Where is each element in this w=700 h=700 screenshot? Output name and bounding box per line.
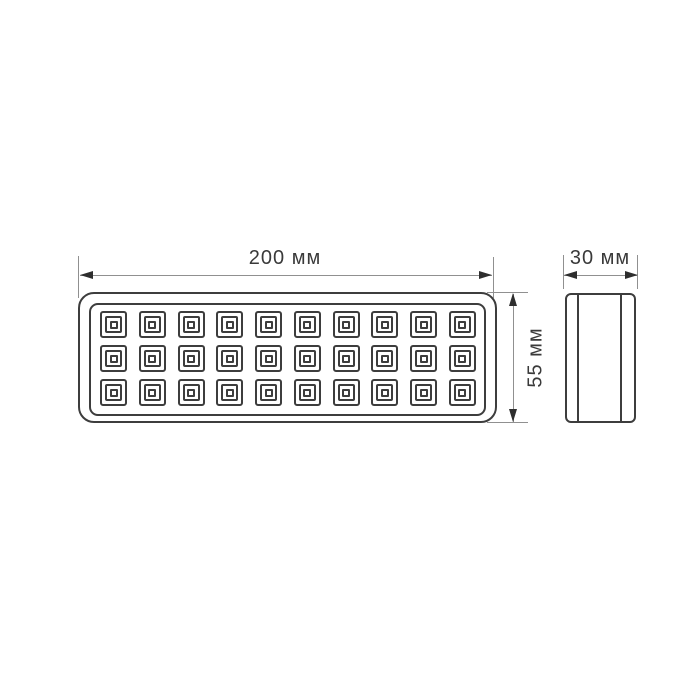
side-body-edge-line-right xyxy=(620,295,622,421)
led-cell-inner-frame xyxy=(183,384,200,401)
led-cell xyxy=(449,311,476,338)
led-chip-icon xyxy=(420,321,428,329)
led-chip-icon xyxy=(226,355,234,363)
led-chip-icon xyxy=(342,389,350,397)
led-cell-inner-frame xyxy=(260,316,277,333)
led-cell xyxy=(178,345,205,372)
led-chip-icon xyxy=(420,355,428,363)
led-cell-inner-frame xyxy=(221,316,238,333)
led-chip-icon xyxy=(381,389,389,397)
height-dimension-line xyxy=(513,294,514,422)
led-cell xyxy=(410,311,437,338)
led-cell-inner-frame xyxy=(376,316,393,333)
led-cell-inner-frame xyxy=(415,316,432,333)
side-body-edge-line-left xyxy=(577,295,579,421)
led-cell-inner-frame xyxy=(338,384,355,401)
led-cell-inner-frame xyxy=(415,350,432,367)
led-cell-inner-frame xyxy=(454,350,471,367)
led-cell-inner-frame xyxy=(144,384,161,401)
led-cell-inner-frame xyxy=(338,316,355,333)
led-chip-icon xyxy=(110,321,118,329)
led-chip-icon xyxy=(110,355,118,363)
arrowhead-left-icon xyxy=(564,271,577,279)
led-chip-icon xyxy=(265,355,273,363)
led-chip-icon xyxy=(458,321,466,329)
led-cell-inner-frame xyxy=(454,384,471,401)
led-chip-icon xyxy=(303,321,311,329)
led-cell xyxy=(255,379,282,406)
led-chip-icon xyxy=(458,355,466,363)
led-cell xyxy=(139,345,166,372)
led-chip-icon xyxy=(187,389,195,397)
led-cell-inner-frame xyxy=(260,350,277,367)
height-dimension-label: 55 мм xyxy=(521,292,551,422)
led-cell xyxy=(294,345,321,372)
led-cell xyxy=(371,345,398,372)
led-cell xyxy=(216,379,243,406)
led-grid xyxy=(100,311,476,406)
led-cell xyxy=(255,311,282,338)
arrowhead-down-icon xyxy=(509,409,517,422)
led-cell-inner-frame xyxy=(299,384,316,401)
led-cell xyxy=(449,379,476,406)
led-cell-inner-frame xyxy=(105,350,122,367)
led-cell-inner-frame xyxy=(299,316,316,333)
led-cell-inner-frame xyxy=(221,350,238,367)
led-chip-icon xyxy=(148,355,156,363)
led-cell-inner-frame xyxy=(376,384,393,401)
led-chip-icon xyxy=(226,389,234,397)
led-cell xyxy=(216,345,243,372)
led-chip-icon xyxy=(187,321,195,329)
led-chip-icon xyxy=(148,321,156,329)
led-cell xyxy=(410,345,437,372)
led-cell-inner-frame xyxy=(338,350,355,367)
led-cell xyxy=(178,311,205,338)
led-chip-icon xyxy=(148,389,156,397)
led-cell-inner-frame xyxy=(144,316,161,333)
arrowhead-up-icon xyxy=(509,293,517,306)
fixture-side-body xyxy=(565,293,636,423)
led-cell xyxy=(371,379,398,406)
arrowhead-right-icon xyxy=(479,271,492,279)
led-cell-inner-frame xyxy=(105,316,122,333)
led-chip-icon xyxy=(187,355,195,363)
led-cell xyxy=(100,345,127,372)
led-cell-inner-frame xyxy=(144,350,161,367)
height-dimension-label-text: 55 мм xyxy=(525,327,548,387)
led-cell xyxy=(139,311,166,338)
led-cell-inner-frame xyxy=(105,384,122,401)
led-chip-icon xyxy=(381,321,389,329)
led-chip-icon xyxy=(458,389,466,397)
led-cell xyxy=(333,379,360,406)
led-chip-icon xyxy=(342,321,350,329)
led-cell-inner-frame xyxy=(221,384,238,401)
led-chip-icon xyxy=(265,321,273,329)
led-cell xyxy=(216,311,243,338)
led-cell-inner-frame xyxy=(376,350,393,367)
led-chip-icon xyxy=(265,389,273,397)
led-cell xyxy=(333,345,360,372)
led-cell xyxy=(294,379,321,406)
led-cell xyxy=(178,379,205,406)
led-chip-icon xyxy=(303,389,311,397)
led-cell xyxy=(333,311,360,338)
led-chip-icon xyxy=(420,389,428,397)
led-cell xyxy=(449,345,476,372)
led-cell xyxy=(100,379,127,406)
led-cell xyxy=(255,345,282,372)
led-cell xyxy=(410,379,437,406)
led-cell xyxy=(100,311,127,338)
led-chip-icon xyxy=(110,389,118,397)
led-chip-icon xyxy=(226,321,234,329)
led-cell xyxy=(139,379,166,406)
height-extension-line-bottom xyxy=(487,422,528,423)
led-cell-inner-frame xyxy=(454,316,471,333)
led-cell-inner-frame xyxy=(415,384,432,401)
led-cell-inner-frame xyxy=(183,350,200,367)
width-dimension-label: 200 мм xyxy=(78,247,492,270)
arrowhead-left-icon xyxy=(80,271,93,279)
led-cell-inner-frame xyxy=(260,384,277,401)
led-cell xyxy=(371,311,398,338)
led-chip-icon xyxy=(342,355,350,363)
led-cell-inner-frame xyxy=(183,316,200,333)
led-cell xyxy=(294,311,321,338)
width-extension-line-left xyxy=(78,256,79,298)
depth-dimension-label: 30 мм xyxy=(555,247,645,270)
technical-drawing-canvas: 200 мм 55 мм 30 мм xyxy=(0,0,700,700)
led-chip-icon xyxy=(303,355,311,363)
width-dimension-line xyxy=(80,275,492,276)
arrowhead-right-icon xyxy=(625,271,638,279)
led-cell-inner-frame xyxy=(299,350,316,367)
led-chip-icon xyxy=(381,355,389,363)
